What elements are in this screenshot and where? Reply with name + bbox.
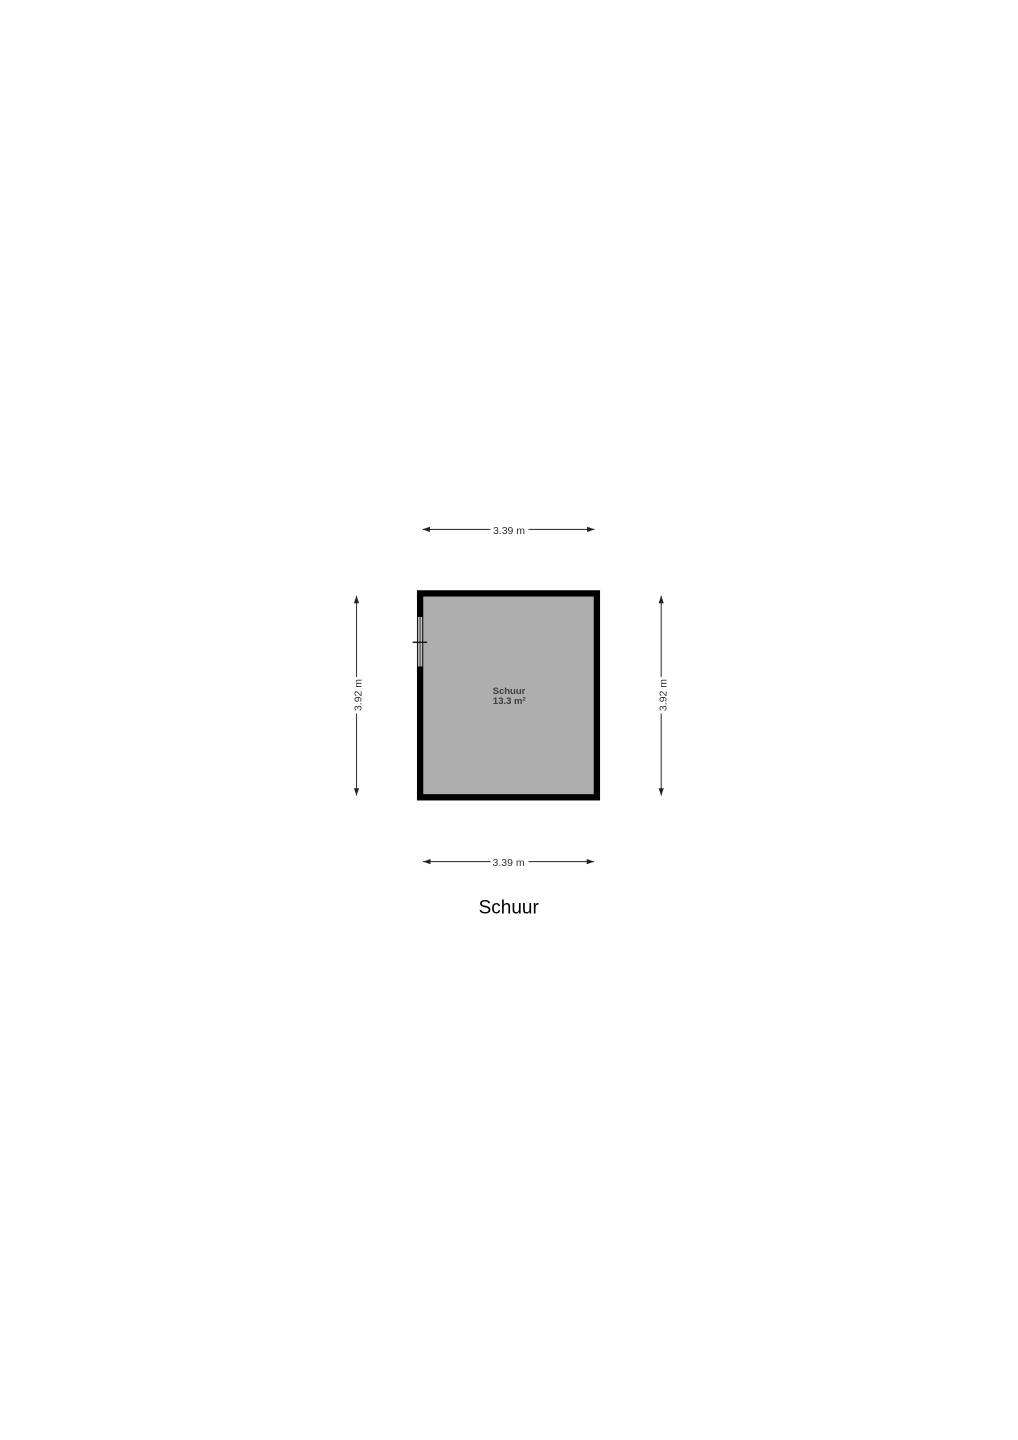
svg-text:3.39 m: 3.39 m: [493, 857, 525, 869]
svg-text:3.92 m: 3.92 m: [657, 679, 669, 711]
svg-text:3.39 m: 3.39 m: [493, 525, 525, 537]
svg-text:3.92 m: 3.92 m: [353, 679, 365, 711]
svg-text:Schuur: Schuur: [479, 898, 540, 919]
svg-text:13.3 m²: 13.3 m²: [493, 696, 526, 707]
